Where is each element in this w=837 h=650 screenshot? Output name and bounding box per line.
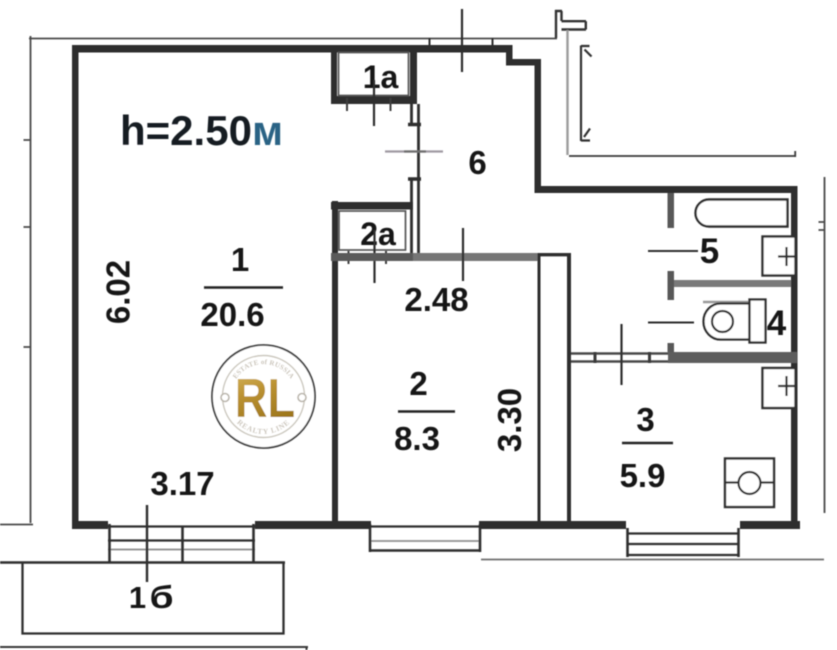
svg-text:5.9: 5.9 [620,457,666,494]
svg-text:1: 1 [231,241,249,278]
svg-text:3.17: 3.17 [150,465,214,502]
svg-text:б: б [150,581,174,615]
svg-text:6: 6 [468,144,486,181]
svg-text:8.3: 8.3 [394,420,440,457]
svg-text:4: 4 [767,304,787,343]
svg-text:1: 1 [129,580,146,615]
svg-text:5: 5 [700,232,719,271]
svg-text:3: 3 [636,401,654,438]
svg-text:3.30: 3.30 [491,388,528,452]
svg-text:2.48: 2.48 [404,281,468,318]
svg-text:h=2.50м: h=2.50м [120,107,283,154]
svg-text:6.02: 6.02 [100,260,137,324]
svg-text:RL: RL [235,367,295,429]
svg-text:20.6: 20.6 [200,296,264,333]
svg-text:1a: 1a [363,59,399,95]
svg-text:2: 2 [409,365,427,402]
svg-text:2a: 2a [360,216,396,252]
